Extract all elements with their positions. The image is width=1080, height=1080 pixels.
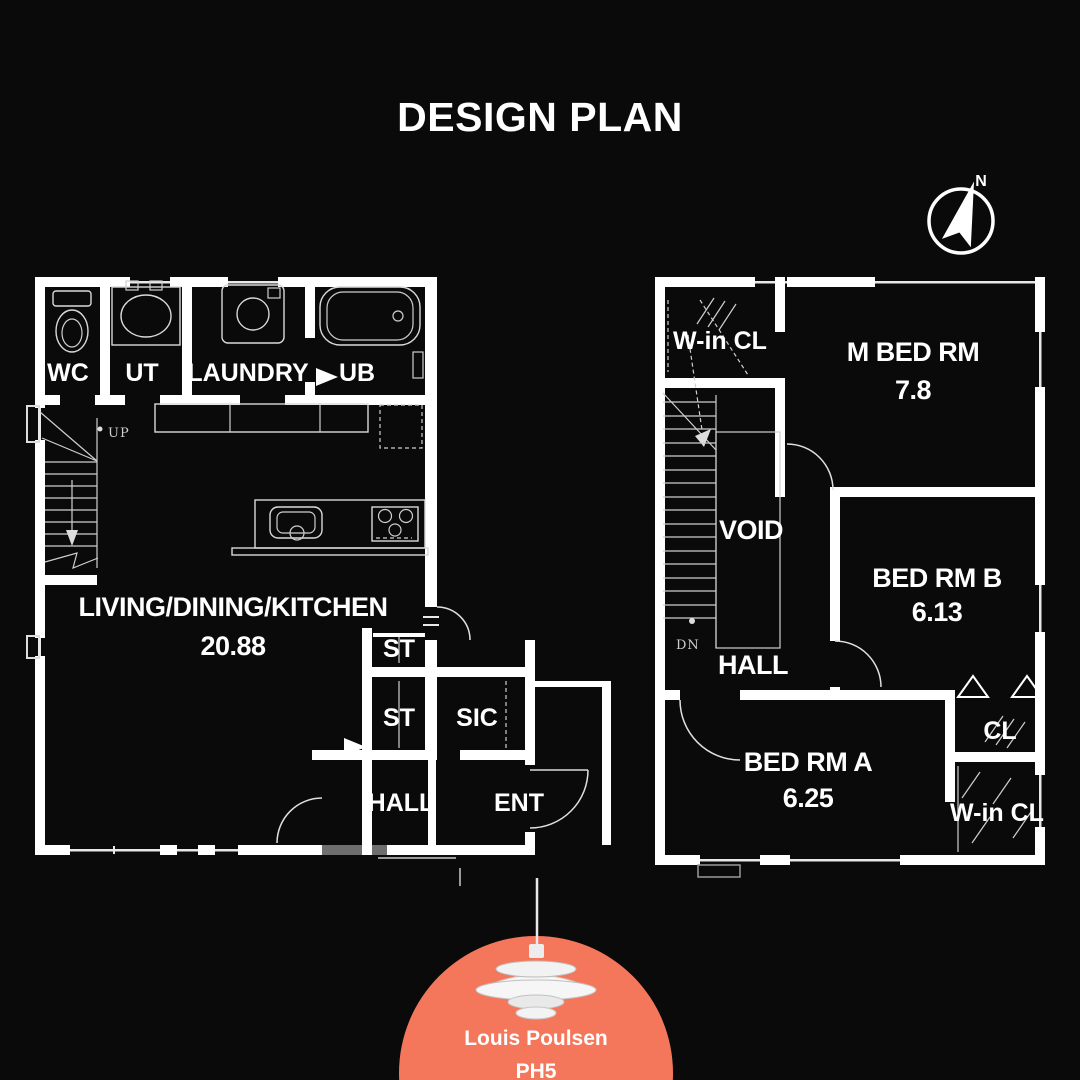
room-label-ent: ENT (494, 789, 544, 817)
washing-machine-icon (222, 285, 284, 343)
fridge-icon (380, 405, 422, 448)
bathtub-icon (320, 287, 420, 345)
room-area-ldk: 20.88 (200, 631, 266, 661)
page-title: DESIGN PLAN (397, 94, 683, 140)
room-label-hall-1f: HALL (368, 789, 435, 817)
compass-icon: N (929, 173, 993, 253)
room-label-walkin-closet-top: W-in CL (673, 327, 767, 355)
lamp-badge: Louis Poulsen PH5 (399, 878, 673, 1080)
room-label-st-lower: ST (383, 704, 415, 732)
room-label-hall-2f: HALL (718, 650, 788, 680)
room-area-bedroom-a: 6.25 (783, 783, 834, 813)
floor1-stair-label: UP (108, 426, 130, 441)
kitchen-counter-icon (155, 404, 368, 432)
poster-graphic: DESIGN PLAN N (0, 0, 1080, 1080)
lamp-model-label: PH5 (516, 1060, 557, 1080)
lamp-brand-label: Louis Poulsen (464, 1027, 608, 1050)
floor1-stairs: UP (40, 412, 130, 568)
floor2-stair-label: DN (676, 638, 700, 653)
room-label-walkin-closet-bottom: W-in CL (950, 799, 1044, 827)
second-floor-plan: DN W-in CL M BED RM 7.8 VOID HALL BED RM… (655, 277, 1045, 877)
room-area-master-bedroom: 7.8 (895, 375, 932, 405)
room-label-bedroom-a: BED RM A (744, 747, 873, 777)
room-label-ub: UB (339, 359, 375, 387)
room-label-ut: UT (125, 359, 158, 387)
design-plan-poster: DESIGN PLAN N (0, 0, 1080, 1080)
room-label-laundry: LAUNDRY (187, 359, 309, 387)
room-label-master-bedroom: M BED RM (847, 337, 980, 367)
floor1-walls (27, 277, 611, 855)
room-area-bedroom-b: 6.13 (912, 597, 963, 627)
first-floor-plan: UP (27, 277, 611, 886)
room-label-ldk: LIVING/DINING/KITCHEN (78, 592, 387, 622)
room-label-closet: CL (983, 717, 1016, 745)
room-label-bedroom-b: BED RM B (872, 563, 1002, 593)
room-label-st-upper: ST (383, 635, 415, 663)
room-label-void: VOID (719, 515, 783, 545)
compass-north-label: N (975, 173, 987, 190)
toilet-icon (53, 291, 91, 306)
room-label-sic: SIC (456, 704, 498, 732)
room-label-wc: WC (47, 359, 89, 387)
